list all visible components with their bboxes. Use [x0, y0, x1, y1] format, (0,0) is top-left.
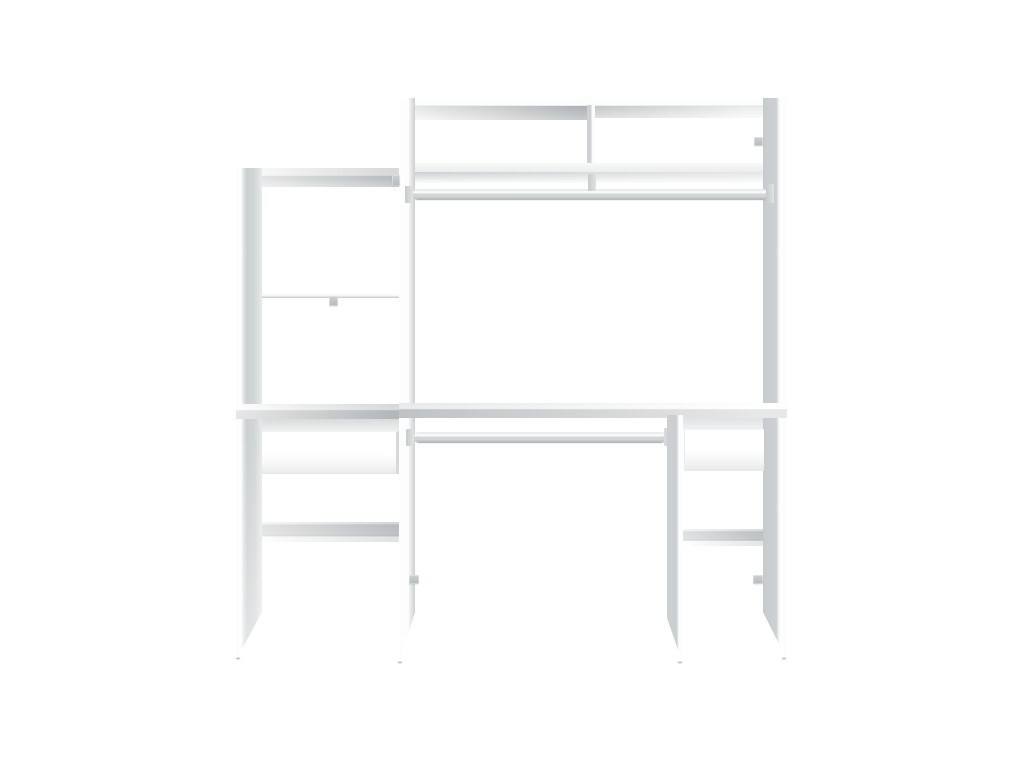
center-middle-shelf	[399, 403, 787, 418]
top-panel-underside-left	[415, 106, 587, 120]
shelf-bracket-fitting	[329, 296, 338, 306]
right-column-shelf	[683, 529, 763, 546]
lower-hanging-rail	[414, 432, 666, 443]
left-drawer-front	[262, 431, 399, 474]
top-compartment-divider	[587, 105, 595, 168]
floor-contact-shadow	[397, 661, 403, 664]
right-divider-panel	[667, 415, 683, 664]
floor-contact-shadow	[235, 657, 241, 660]
upper-rail-left-bracket	[405, 186, 413, 203]
top-panel-underside-right	[595, 106, 763, 118]
cam-lock-fitting-right-lower	[753, 575, 763, 584]
top-compartment-shelf	[399, 163, 787, 172]
left-drawer-opening	[262, 419, 399, 431]
right-drawer-front	[684, 429, 764, 471]
cam-lock-fitting-center-lower	[409, 575, 419, 584]
floor-contact-shadow	[781, 657, 787, 660]
lower-rail-left-bracket	[406, 429, 414, 446]
upper-rail-right-bracket	[766, 184, 774, 203]
left-column-lower-shelf	[262, 522, 399, 542]
right-side-panel	[763, 98, 787, 660]
cam-lock-fitting-left-top	[392, 175, 400, 186]
left-column-middle-shelf	[236, 404, 399, 419]
cam-lock-fitting-top-right	[754, 137, 763, 146]
floor-contact-shadow	[677, 661, 683, 664]
product-photo-stage	[0, 0, 1024, 768]
right-drawer-opening	[683, 418, 763, 429]
upper-rail-center-hanger	[588, 174, 596, 191]
